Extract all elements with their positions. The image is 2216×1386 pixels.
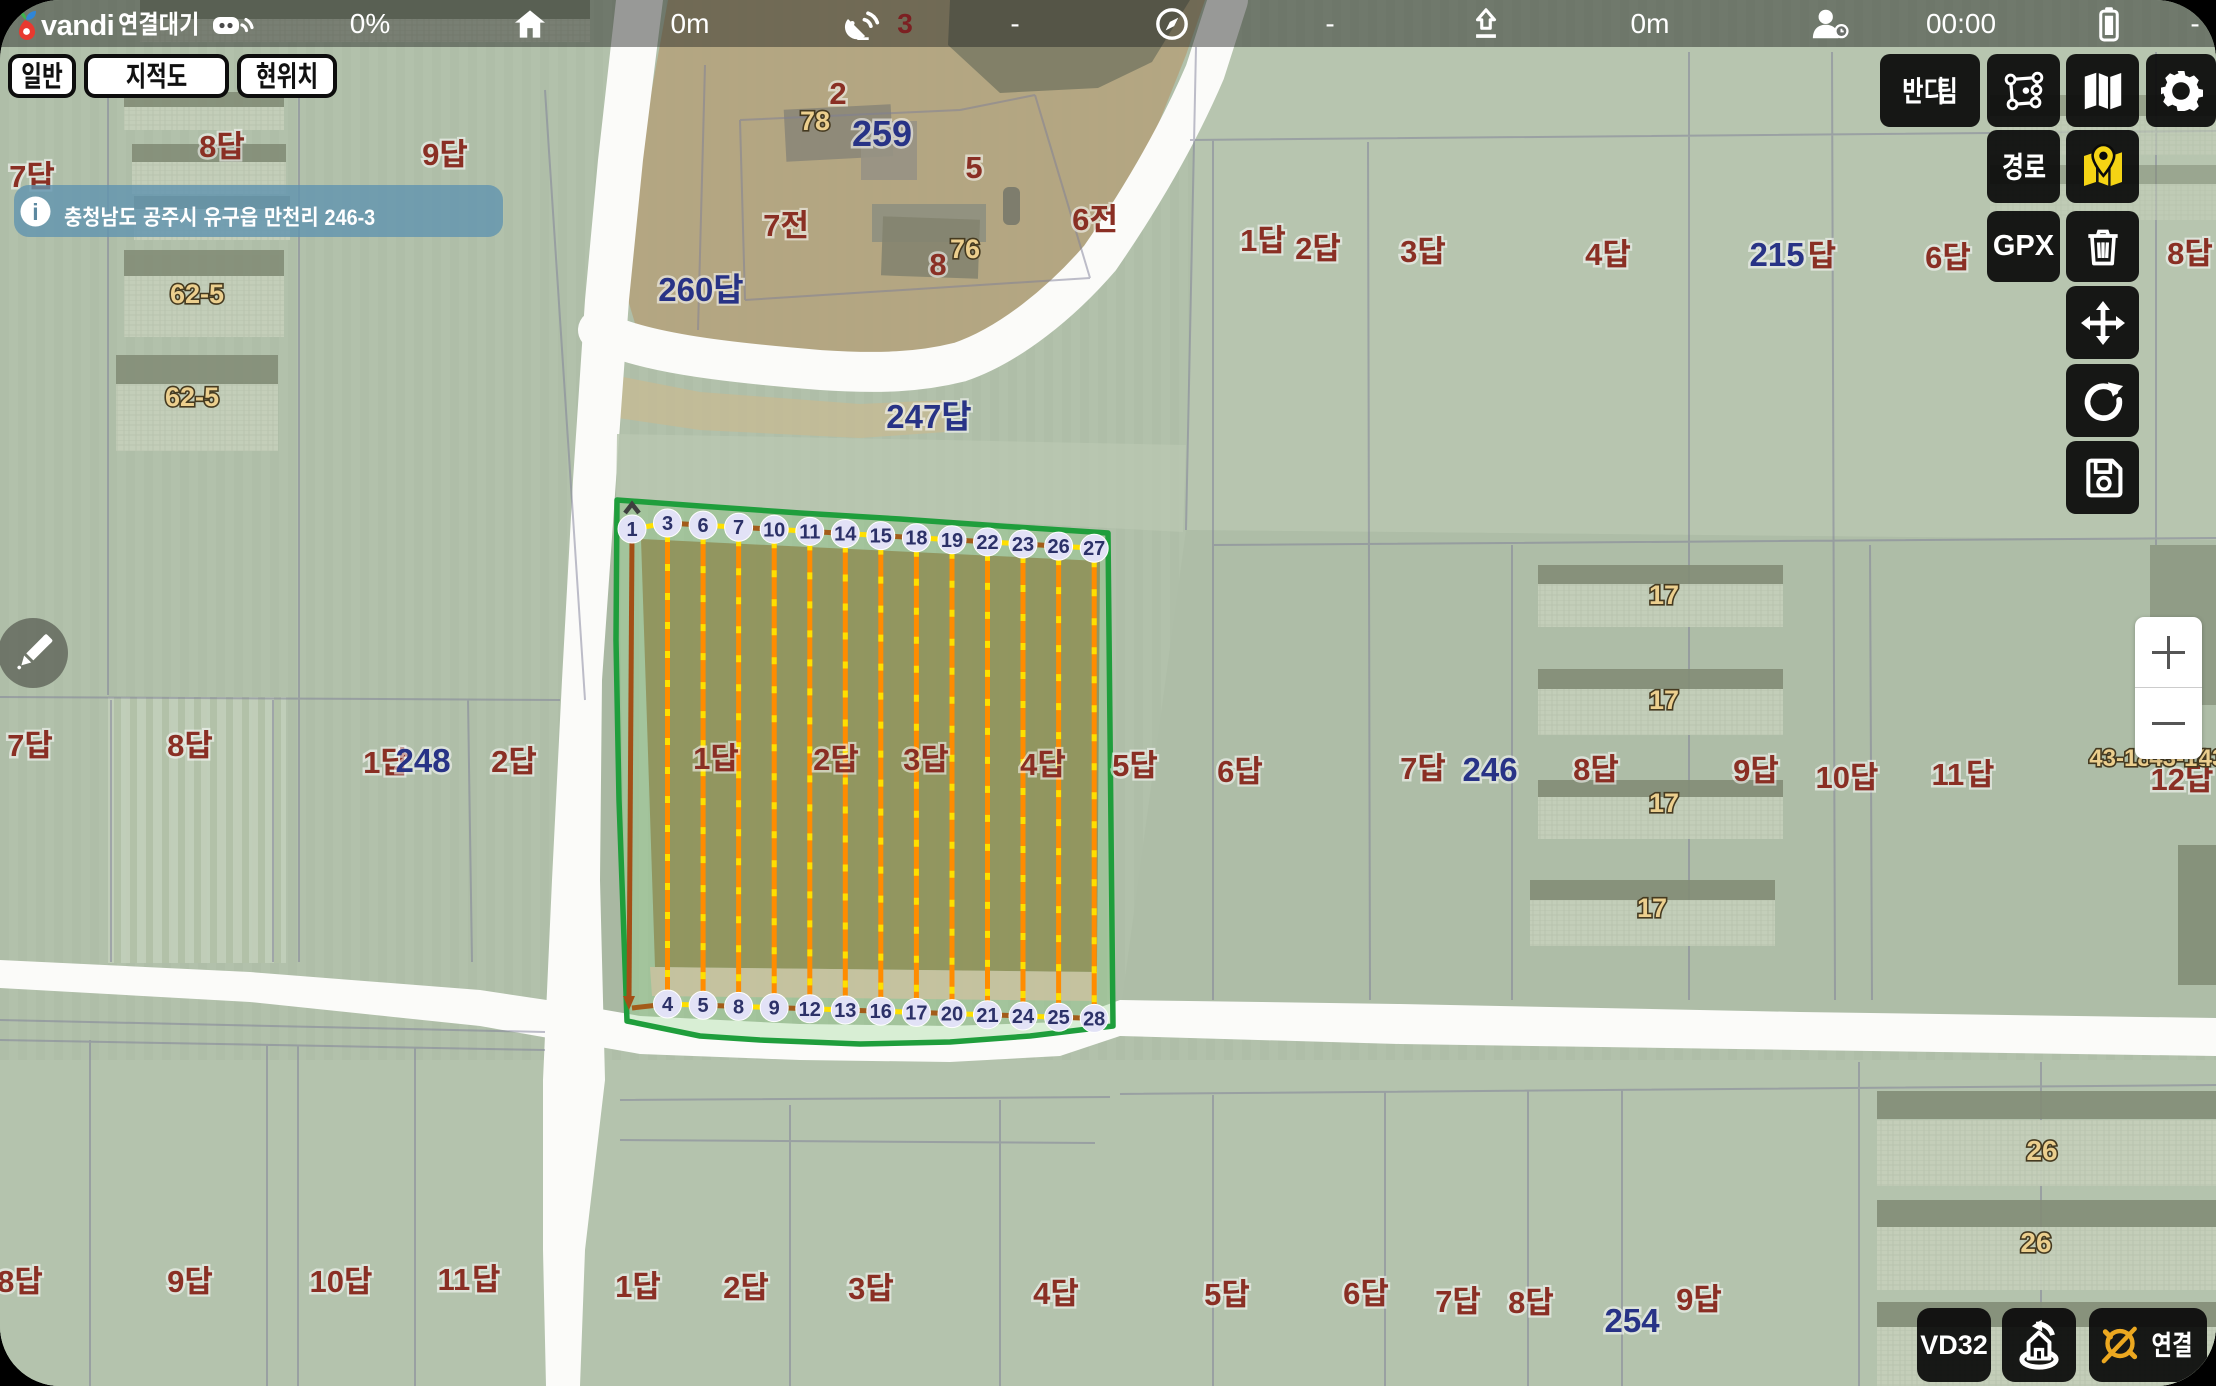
svg-text:254: 254 — [1605, 1302, 1661, 1339]
svg-text:8: 8 — [0, 1264, 14, 1299]
svg-text:13: 13 — [834, 1000, 856, 1022]
svg-text:1: 1 — [615, 1269, 632, 1304]
svg-text:7: 7 — [1435, 1284, 1452, 1319]
svg-text:7: 7 — [1400, 751, 1417, 786]
svg-text:62-5: 62-5 — [170, 279, 224, 309]
svg-text:8: 8 — [199, 129, 216, 164]
svg-text:17: 17 — [905, 1002, 927, 1024]
svg-text:6: 6 — [1925, 240, 1942, 275]
svg-text:8: 8 — [733, 996, 744, 1018]
svg-text:vandi: vandi — [41, 10, 114, 42]
svg-text:247: 247 — [886, 398, 941, 435]
svg-text:4: 4 — [1033, 1276, 1051, 1311]
svg-text:16: 16 — [870, 1001, 892, 1023]
svg-text:21: 21 — [976, 1005, 998, 1027]
svg-text:20: 20 — [941, 1004, 963, 1026]
svg-text:260: 260 — [658, 271, 713, 308]
svg-text:26: 26 — [1047, 536, 1069, 558]
svg-text:1: 1 — [1240, 223, 1257, 258]
svg-text:6: 6 — [698, 515, 709, 537]
svg-text:22: 22 — [976, 532, 998, 554]
svg-text:215: 215 — [1750, 236, 1805, 273]
svg-text:8: 8 — [929, 247, 946, 282]
svg-text:78: 78 — [800, 106, 830, 136]
svg-text:9: 9 — [167, 1264, 184, 1299]
svg-text:17: 17 — [1649, 788, 1679, 818]
svg-text:1: 1 — [626, 519, 637, 541]
svg-text:11: 11 — [1932, 757, 1965, 792]
svg-text:25: 25 — [1047, 1007, 1069, 1029]
svg-text:4: 4 — [1020, 747, 1038, 782]
svg-text:28: 28 — [1083, 1008, 1105, 1030]
svg-text:5: 5 — [1112, 748, 1129, 783]
svg-text:14: 14 — [834, 524, 857, 546]
svg-text:4: 4 — [662, 994, 674, 1016]
svg-text:9: 9 — [422, 137, 439, 172]
svg-text:10: 10 — [310, 1264, 344, 1299]
svg-text:7: 7 — [733, 517, 744, 539]
svg-text:15: 15 — [870, 526, 892, 548]
svg-text:62-5: 62-5 — [165, 382, 219, 412]
svg-text:12: 12 — [799, 999, 821, 1021]
svg-text:17: 17 — [1649, 685, 1679, 715]
svg-text:76: 76 — [950, 234, 980, 264]
svg-text:17: 17 — [1637, 893, 1667, 923]
svg-text:3: 3 — [364, 206, 375, 230]
svg-text:18: 18 — [905, 528, 927, 550]
svg-text:-: - — [358, 206, 365, 230]
svg-text:2: 2 — [491, 744, 508, 779]
svg-text:9: 9 — [769, 998, 780, 1020]
svg-text:9: 9 — [1733, 753, 1750, 788]
svg-text:3: 3 — [903, 742, 920, 777]
svg-text:19: 19 — [941, 530, 963, 552]
svg-text:10: 10 — [763, 519, 785, 541]
svg-text:10: 10 — [1816, 760, 1850, 795]
svg-text:24: 24 — [1012, 1006, 1035, 1028]
svg-text:1: 1 — [693, 741, 710, 776]
svg-text:6: 6 — [347, 206, 358, 230]
svg-text:6: 6 — [1072, 202, 1089, 237]
svg-text:27: 27 — [1083, 538, 1105, 560]
svg-text:8: 8 — [1508, 1285, 1525, 1320]
svg-text:2: 2 — [325, 206, 336, 230]
svg-text:7: 7 — [763, 208, 780, 243]
svg-text:26: 26 — [2026, 1135, 2057, 1166]
svg-text:5: 5 — [698, 995, 709, 1017]
svg-text:8: 8 — [167, 728, 184, 763]
svg-text:2: 2 — [1295, 231, 1312, 266]
svg-text:3: 3 — [662, 513, 673, 535]
svg-text:23: 23 — [1012, 534, 1034, 556]
svg-text:3: 3 — [848, 1271, 865, 1306]
svg-text:8: 8 — [2167, 236, 2184, 271]
svg-text:9: 9 — [1676, 1282, 1693, 1317]
svg-text:248: 248 — [396, 742, 451, 779]
svg-text:2: 2 — [829, 76, 846, 111]
svg-text:11: 11 — [799, 521, 820, 543]
svg-text:i: i — [32, 199, 38, 225]
svg-text:26: 26 — [2020, 1227, 2051, 1258]
svg-text:2: 2 — [723, 1270, 740, 1305]
svg-text:2: 2 — [813, 742, 830, 777]
svg-text:8: 8 — [1573, 752, 1590, 787]
svg-text:4: 4 — [336, 206, 347, 230]
svg-text:11: 11 — [438, 1262, 471, 1297]
svg-text:259: 259 — [852, 113, 912, 154]
svg-text:5: 5 — [1204, 1277, 1221, 1312]
svg-text:246: 246 — [1463, 751, 1518, 788]
svg-text:17: 17 — [1649, 580, 1679, 610]
svg-text:1: 1 — [363, 745, 380, 780]
svg-text:6: 6 — [1343, 1276, 1360, 1311]
svg-text:7: 7 — [7, 728, 24, 763]
svg-text:4: 4 — [1585, 237, 1603, 272]
svg-text:5: 5 — [965, 150, 982, 185]
svg-text:3: 3 — [1400, 234, 1417, 269]
svg-text:6: 6 — [1217, 754, 1234, 789]
